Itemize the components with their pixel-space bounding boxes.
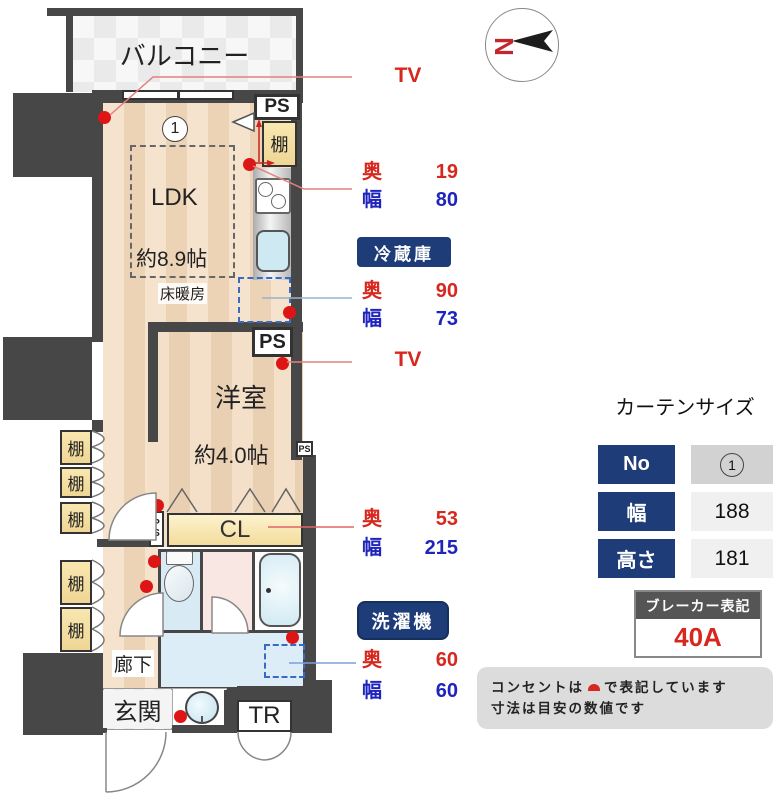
curtain-height-cell: 181 [691, 539, 773, 578]
washer-width-row: 幅 60 [362, 679, 458, 703]
ps-small-label: PS [298, 443, 311, 455]
washer-depth-row: 奥 60 [362, 648, 458, 672]
breaker-value: 40A [636, 619, 760, 656]
curtain-no-value: 1 [728, 457, 736, 473]
compass-north-label: N [488, 37, 519, 56]
curtain-width-header: 幅 [598, 492, 675, 531]
pillar-mid-left [3, 337, 92, 420]
ldk-label: LDK [151, 184, 198, 212]
fridge-depth-value: 90 [436, 279, 458, 303]
shelf-box-5: 棚 [60, 607, 92, 652]
shelf-label-2: 棚 [62, 469, 90, 496]
fridge-width-value: 73 [436, 307, 458, 331]
unit-number-circle: 1 [162, 116, 188, 142]
ps-shaft-mid: PS [252, 327, 293, 357]
western-room-label: 洋室 [215, 378, 267, 415]
curtain-width-cell: 188 [691, 492, 773, 531]
outlet-basin [174, 710, 187, 723]
cl-label: CL [169, 515, 301, 545]
western-size-label: 約4.0帖 [194, 438, 269, 470]
tr-door-right-arc [264, 732, 291, 760]
shelf-label-5: 棚 [62, 609, 90, 650]
shelf-box-2: 棚 [60, 467, 92, 498]
fridge-width-row: 幅 73 [362, 307, 458, 331]
shelf-depth-value: 19 [436, 160, 458, 184]
balcony-railing [47, 8, 303, 16]
under-sink-wall [172, 725, 224, 733]
ps-vertical-s: S [153, 529, 160, 539]
shelf-width-value: 80 [436, 188, 458, 212]
closet-depth-value: 53 [436, 507, 458, 531]
kitchen-shelf: 棚 [262, 121, 297, 167]
closet-depth-label: 奥 [362, 507, 382, 531]
outlet-legend-icon [588, 684, 600, 691]
note-line1-pre: コンセントは [491, 677, 584, 698]
shelf-width-label: 幅 [362, 188, 382, 212]
breaker-title: ブレーカー表記 [636, 592, 760, 619]
note-line-2: 寸法は目安の数値です [491, 698, 759, 719]
floorplan-page: PS 棚 PS PS CL P S TR 棚 棚 棚 棚 棚 バルコニー 1 L… [0, 0, 778, 800]
kitchen-shelf-label: 棚 [264, 123, 295, 165]
fridge-width-label: 幅 [362, 307, 382, 331]
curtain-no-header: No [598, 445, 675, 484]
balcony-label: バルコニー [72, 16, 297, 92]
hall-strip-floor [103, 330, 148, 545]
ps-mid-label: PS [255, 330, 290, 354]
tv-label-west: TV [380, 348, 436, 372]
tv-label-top: TV [380, 64, 436, 88]
washer-depth-value: 60 [436, 648, 458, 672]
breaker-box: ブレーカー表記 40A [634, 590, 762, 658]
closet-depth-row: 奥 53 [362, 507, 458, 531]
shelf-depth-row: 奥 19 [362, 160, 458, 184]
unit-number: 1 [171, 120, 180, 138]
closet-width-value: 215 [425, 536, 458, 560]
pillar-bottom-left [23, 653, 103, 735]
shelf-depth-label: 奥 [362, 160, 382, 184]
note-line-1: コンセントは で表記しています [491, 677, 759, 698]
shelf-width-row: 幅 80 [362, 188, 458, 212]
ldk-size-label: 約8.9帖 [136, 243, 207, 273]
toilet-tank [166, 551, 193, 565]
left-wall-shelf-joint [92, 420, 103, 432]
entrance-label: 玄関 [103, 690, 172, 728]
trunk-room-box: TR [237, 700, 292, 732]
closet-cl: CL [167, 513, 303, 547]
stove-burner-2 [271, 194, 286, 209]
balcony-wall-right [296, 8, 303, 92]
outlet-fridge [283, 306, 296, 319]
curtain-title: カーテンサイズ [597, 392, 773, 418]
outlet-laundry [286, 631, 299, 644]
entrance-door-arc [106, 732, 166, 792]
outlet-hall-2 [138, 523, 151, 536]
stove-burner-1 [258, 182, 273, 197]
note-line1-post: で表記しています [604, 677, 728, 698]
outlet-kitchen [243, 158, 256, 171]
bathtub-drain [266, 588, 271, 593]
toilet-bowl [164, 565, 194, 602]
basin-tap [201, 716, 203, 723]
tr-right-wall [290, 688, 316, 733]
washer-space [264, 644, 305, 678]
washer-depth-label: 奥 [362, 648, 382, 672]
shelf-box-4: 棚 [60, 560, 92, 605]
shelf-label-3: 棚 [62, 504, 90, 532]
partition-vertical [148, 322, 158, 442]
ps-shaft-top: PS [254, 94, 300, 120]
fridge-depth-row: 奥 90 [362, 279, 458, 303]
outlet-tv-west [276, 357, 289, 370]
shelf-label-4: 棚 [62, 562, 90, 603]
fridge-space [238, 277, 291, 323]
fridge-badge: 冷蔵庫 [357, 237, 451, 267]
note-box: コンセントは で表記しています 寸法は目安の数値です [477, 667, 773, 729]
closet-width-row: 幅 215 [362, 536, 458, 560]
fridge-depth-label: 奥 [362, 279, 382, 303]
sink-tr-wall [224, 690, 237, 733]
left-wall-upper [92, 102, 103, 342]
shelf-box-1: 棚 [60, 430, 92, 465]
washroom-floor [200, 549, 255, 633]
corridor-separator [97, 539, 152, 547]
outlet-toilet-2 [140, 580, 153, 593]
washer-width-label: 幅 [362, 679, 382, 703]
outlet-hall-1 [151, 499, 164, 512]
curtain-no-cell: 1 [691, 445, 773, 484]
closet-width-label: 幅 [362, 536, 382, 560]
floor-heating-label: 床暖房 [158, 283, 207, 304]
shelf-label-1: 棚 [62, 432, 90, 463]
washer-width-value: 60 [436, 679, 458, 703]
kitchen-sink [256, 230, 290, 272]
ps-top-label: PS [257, 97, 297, 117]
compass: N [485, 8, 559, 82]
curtain-height-header: 高さ [598, 539, 675, 578]
ps-shaft-vertical: P S [149, 511, 164, 547]
tr-door-left-arc [238, 732, 264, 760]
ps-shaft-small: PS [296, 441, 313, 457]
outlet-ldk [98, 111, 111, 124]
corridor-label: 廊下 [112, 650, 154, 677]
curtain-no-circle: 1 [720, 453, 744, 477]
tr-label: TR [239, 702, 290, 730]
pillar-top-left [13, 93, 103, 177]
washer-badge: 洗濯機 [357, 601, 449, 640]
outlet-toilet-1 [148, 555, 161, 568]
shelf-box-3: 棚 [60, 502, 92, 534]
